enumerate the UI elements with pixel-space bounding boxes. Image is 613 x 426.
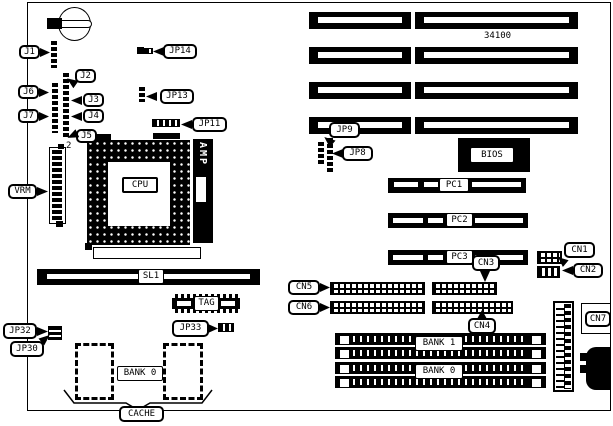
callout-jp9: JP9 <box>329 122 360 138</box>
bios-label: BIOS <box>470 147 514 163</box>
sl1-label: SL1 <box>138 269 164 284</box>
callout-j6: J6 <box>18 85 39 99</box>
isa-slot-2-left <box>309 47 411 64</box>
callout-jp30: JP30 <box>10 341 44 357</box>
cache-bank0-label: BANK 0 <box>117 366 163 381</box>
jp11-pin-header <box>152 119 180 127</box>
board-part-number: 34100 <box>484 32 511 41</box>
cpu-label: CPU <box>122 177 158 193</box>
jp9-pin-header <box>318 142 324 166</box>
callout-cn6: CN6 <box>288 300 320 315</box>
pc2-label: PC2 <box>446 213 473 227</box>
isa-slot-3-left <box>309 82 411 99</box>
isa-slot-2-right <box>415 47 578 64</box>
jp13-jumper <box>139 87 145 102</box>
cn1-connector <box>537 251 562 264</box>
isa-slot-1-right <box>415 12 578 29</box>
callout-j5: J5 <box>76 129 97 143</box>
callout-j4: J4 <box>83 109 104 123</box>
callout-jp14: JP14 <box>163 44 197 59</box>
socket-notch <box>85 243 92 250</box>
callout-cn2: CN2 <box>573 263 603 278</box>
amp-brand-label: AMP <box>197 142 207 166</box>
callout-j7: J7 <box>18 109 39 123</box>
cn6-pin-header <box>330 301 425 314</box>
callout-cn3: CN3 <box>472 255 500 271</box>
battery-lever <box>61 20 92 28</box>
socket-bottom-bar <box>93 247 201 259</box>
callout-j1: J1 <box>19 45 40 59</box>
tag-label: TAG <box>194 296 219 311</box>
socket-tab-right <box>153 133 180 139</box>
tag-bar-right <box>221 301 235 306</box>
motherboard-diagram: J1 J2 J6 J3 J7 J4 J5 JP14 JP13 JP11 2 VR… <box>0 0 613 426</box>
cn2-connector <box>537 266 560 278</box>
vrm-corner-bottom <box>56 221 63 227</box>
cpu-socket-cavity <box>108 162 170 226</box>
vrm-pin1-label: 2 <box>66 142 71 151</box>
callout-jp11: JP11 <box>192 117 227 132</box>
callout-j3: J3 <box>83 93 104 107</box>
jp32-jp30-jumper-block <box>48 326 62 340</box>
keyboard-connector-tab-top <box>580 353 587 361</box>
cn4-pin-header <box>432 301 513 314</box>
keyboard-connector-tab-bottom <box>580 365 587 373</box>
callout-vrm: VRM <box>8 184 37 199</box>
callout-cn7: CN7 <box>585 311 611 327</box>
cn3-pin-header <box>432 282 497 295</box>
callout-cn1: CN1 <box>564 242 595 258</box>
vrm-corner-top <box>58 144 64 149</box>
isa-slot-4-right <box>415 117 578 134</box>
callout-cn4: CN4 <box>468 318 496 334</box>
vrm-connector-pins <box>52 150 62 220</box>
callout-jp13: JP13 <box>160 89 194 104</box>
pc1-label: PC1 <box>439 178 469 192</box>
power-connector <box>553 301 574 392</box>
jp14-jumper-pins <box>144 48 153 54</box>
isa-slot-3-right <box>415 82 578 99</box>
j2-j5-pin-header <box>63 73 69 137</box>
callout-cache: CACHE <box>119 406 164 422</box>
j6-j7-pin-header <box>52 83 58 133</box>
jp14-jumper <box>137 47 144 54</box>
callout-jp32: JP32 <box>3 323 37 339</box>
amp-lever-handle <box>195 176 207 203</box>
callout-jp33: JP33 <box>172 320 209 337</box>
keyboard-connector <box>586 347 611 390</box>
isa-slot-1-left <box>309 12 411 29</box>
pc3-label: PC3 <box>446 250 473 264</box>
jp33-jumper <box>218 323 234 332</box>
isa-slot-4-left <box>309 117 411 134</box>
bank0-label: BANK 0 <box>415 364 463 379</box>
cn5-pin-header <box>330 282 425 295</box>
bank1-label: BANK 1 <box>415 336 463 351</box>
j1-pin-header <box>51 41 57 68</box>
callout-cn5: CN5 <box>288 280 320 295</box>
tag-bar-left <box>177 301 191 306</box>
battery-clip <box>47 18 62 29</box>
callout-jp8: JP8 <box>342 146 373 161</box>
